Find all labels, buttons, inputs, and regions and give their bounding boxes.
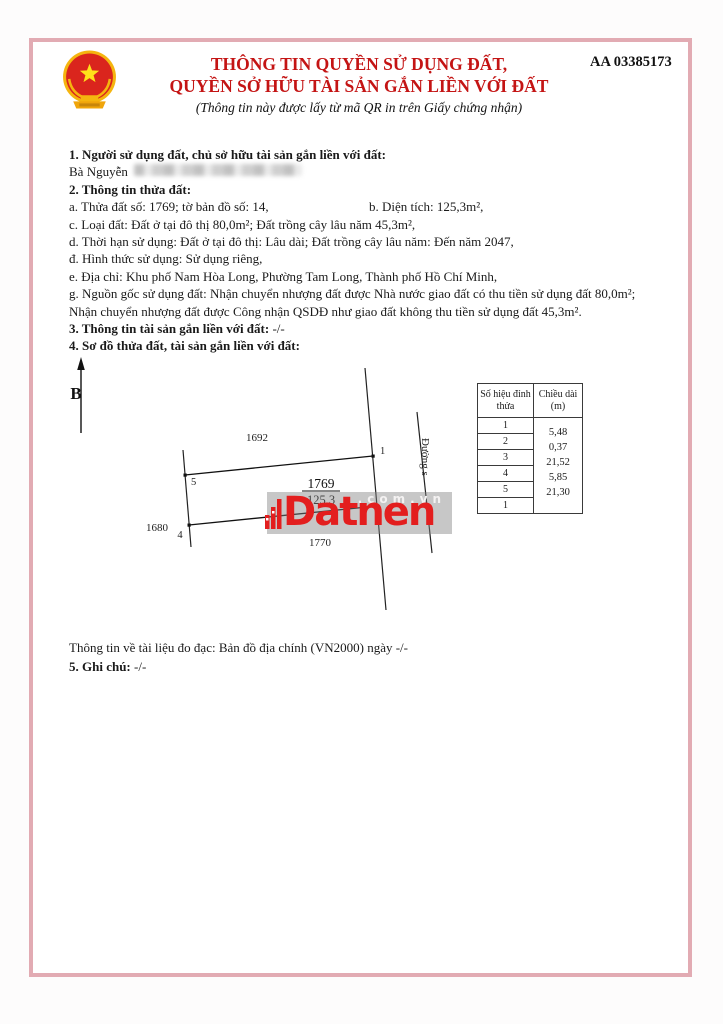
col-header-vertex-id: Số hiệu đỉnh thửa [478,384,534,417]
owner-line: Bà Nguyễn [69,163,635,180]
section2-heading: 2. Thông tin thửa đất: [69,181,635,198]
table-row: 2 [478,434,533,450]
table-row: 3 [478,450,533,466]
vertex-label-1: 1 [380,446,385,457]
vietnam-emblem-icon [61,48,118,114]
section3-value: -/- [272,321,284,336]
notes-line: 5. Ghi chú: -/- [69,658,408,677]
land-type-line: c. Loại đất: Đất ở tại đô thị 80,0m²; Đấ… [69,216,635,233]
table-row: 4 [478,466,533,482]
length-value: 5,48 [534,426,582,440]
north-arrow-label: B [70,384,81,403]
use-form-line: đ. Hình thức sử dụng: Sử dụng riêng, [69,250,635,267]
vertex-id-column: 1 2 3 4 5 1 [478,418,534,513]
document-title-line1: THÔNG TIN QUYỀN SỬ DỤNG ĐẤT, [129,53,589,75]
section3-heading: 3. Thông tin tài sản gắn liền với đất: [69,321,269,336]
use-term-line: d. Thời hạn sử dụng: Đất ở tại đô thị: L… [69,233,635,250]
table-header-row: Số hiệu đỉnh thửa Chiều dài (m) [478,384,582,418]
area-text: b. Diện tích: 125,3m², [369,198,483,215]
datnen-building-icon [265,499,282,529]
section1-heading: 1. Người sử dụng đất, chủ sở hữu tài sản… [69,146,635,163]
length-value: 21,30 [534,486,582,500]
land-origin-line2: Nhận chuyển nhượng đất được Công nhận QS… [69,303,635,320]
owner-name-prefix: Bà Nguyễn [69,164,128,179]
document-subtitle: (Thông tin này được lấy từ mã QR in trên… [129,98,589,118]
redacted-owner-name [134,164,302,176]
table-body: 1 2 3 4 5 1 5,48 0,37 21,52 5,85 21,30 [478,418,582,513]
land-origin-line1: g. Nguồn gốc sử dụng đất: Nhận chuyển nh… [69,285,635,302]
watermark-brand: Datnen [265,492,434,532]
road-name-label: Đường s [419,438,431,476]
section5-heading: 5. Ghi chú: [69,659,131,674]
length-value: 0,37 [534,441,582,455]
measurement-note: Thông tin về tài liệu đo đạc: Bản đồ địa… [69,639,408,658]
adjacent-parcel-bottom: 1770 [309,537,332,549]
document-title-line2: QUYỀN SỞ HỮU TÀI SẢN GẮN LIỀN VỚI ĐẤT [129,75,589,97]
document-footer: Thông tin về tài liệu đo đạc: Bản đồ địa… [69,639,408,676]
watermark-banner: .com.vn Datnen [267,492,452,534]
table-row: 1 [478,498,533,513]
table-row: 5 [478,482,533,498]
vertex-label-4: 4 [177,530,183,541]
parcel-number-text: a. Thửa đất số: 1769; tờ bản đồ số: 14, [69,199,269,214]
certificate-page: THÔNG TIN QUYỀN SỬ DỤNG ĐẤT, QUYỀN SỞ HỮ… [29,38,692,977]
col-header-length: Chiều dài (m) [534,384,582,417]
section3-heading-line: 3. Thông tin tài sản gắn liền với đất: -… [69,320,635,337]
section5-value: -/- [134,659,146,674]
parcel-number-line: a. Thửa đất số: 1769; tờ bản đồ số: 14,b… [69,198,635,215]
document-body: 1. Người sử dụng đất, chủ sở hữu tài sản… [69,146,635,355]
document-title-block: THÔNG TIN QUYỀN SỬ DỤNG ĐẤT, QUYỀN SỞ HỮ… [129,53,589,118]
adjacent-parcel-left: 1680 [146,522,169,534]
serial-number: AA 03385173 [590,54,672,71]
length-value: 5,85 [534,471,582,485]
length-column: 5,48 0,37 21,52 5,85 21,30 [534,418,582,513]
length-value: 21,52 [534,456,582,470]
address-line: e. Địa chỉ: Khu phố Nam Hòa Long, Phường… [69,268,635,285]
vertex-length-table: Số hiệu đỉnh thửa Chiều dài (m) 1 2 3 4 … [477,383,583,514]
table-row: 1 [478,418,533,434]
section4-heading: 4. Sơ đồ thửa đất, tài sản gắn liền với … [69,337,635,354]
adjacent-parcel-top: 1692 [246,432,268,444]
watermark-brand-text: Datnen [283,492,434,532]
vertex-label-5: 5 [191,477,196,488]
